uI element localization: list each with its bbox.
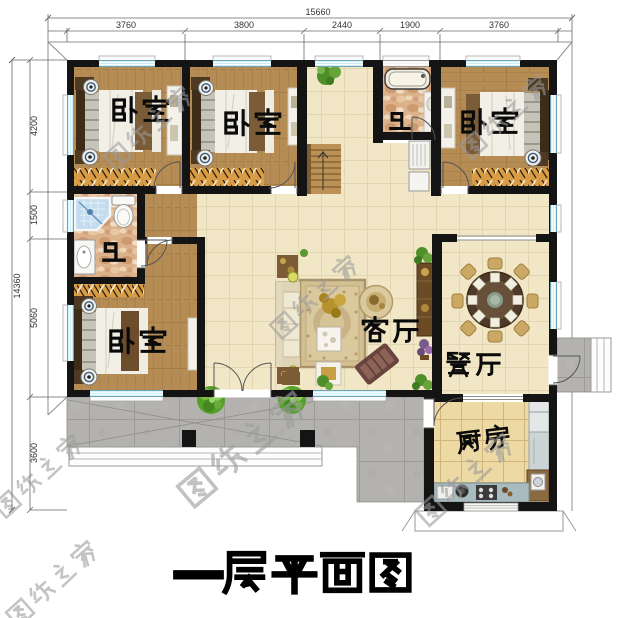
svg-text:3800: 3800 <box>234 20 254 30</box>
svg-text:3760: 3760 <box>489 20 509 30</box>
svg-text:14360: 14360 <box>12 273 22 298</box>
svg-text:2440: 2440 <box>332 20 352 30</box>
svg-text:1900: 1900 <box>400 20 420 30</box>
svg-text:15660: 15660 <box>305 7 330 17</box>
svg-text:4200: 4200 <box>29 116 39 136</box>
svg-text:3600: 3600 <box>29 443 39 463</box>
svg-text:1500: 1500 <box>29 205 39 225</box>
svg-text:3760: 3760 <box>116 20 136 30</box>
svg-text:5060: 5060 <box>29 308 39 328</box>
